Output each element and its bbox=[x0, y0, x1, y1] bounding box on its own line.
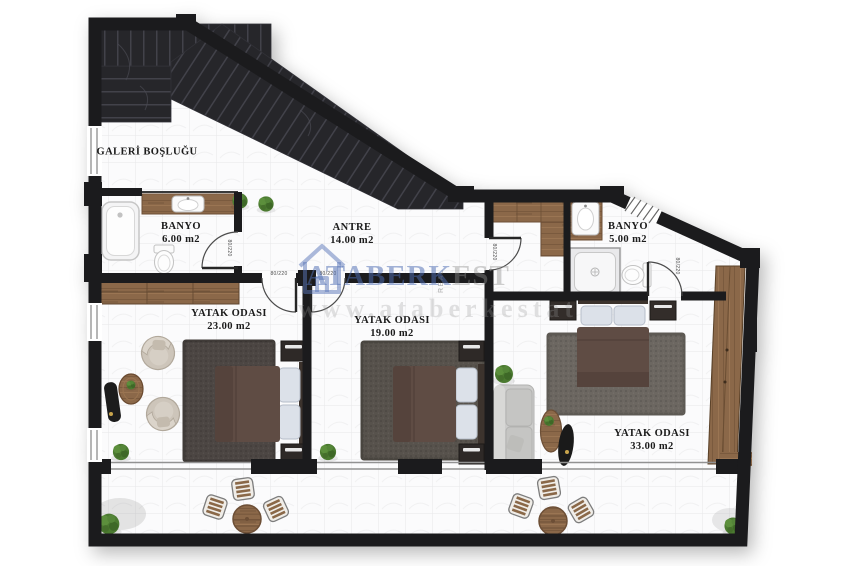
floor-plan-canvas bbox=[0, 0, 850, 566]
sofa bbox=[494, 385, 534, 465]
door-dimension-label: 80/220 bbox=[674, 257, 680, 274]
coffee-table bbox=[541, 410, 562, 452]
room-name: BANYO bbox=[608, 220, 648, 233]
room-label-gallery: GALERİ BOŞLUĞU bbox=[97, 146, 198, 159]
room-name: GALERİ BOŞLUĞU bbox=[97, 146, 198, 159]
nightstand bbox=[459, 341, 484, 361]
floor-plan-page: GALERİ BOŞLUĞU BANYO 6.00 m2 ANTRE 14.00… bbox=[0, 0, 850, 566]
nightstand bbox=[550, 301, 576, 320]
nightstand bbox=[281, 341, 306, 361]
room-label-bedroom-middle: YATAK ODASI 19.00 m2 bbox=[354, 314, 430, 340]
room-label-bathroom-left: BANYO 6.00 m2 bbox=[161, 220, 201, 246]
room-label-bedroom-left: YATAK ODASI 23.00 m2 bbox=[191, 307, 267, 333]
room-area: 23.00 m2 bbox=[191, 320, 267, 333]
door-dimension-label: 80/220 bbox=[270, 271, 287, 277]
door-dimension-label: 80/220 bbox=[319, 271, 336, 277]
door-dimension-label: 80/220 bbox=[491, 243, 497, 260]
room-name: ANTRE bbox=[330, 221, 373, 234]
chair bbox=[231, 477, 255, 501]
headboard bbox=[478, 364, 485, 444]
room-area: 6.00 m2 bbox=[161, 233, 201, 246]
room-area: 33.00 m2 bbox=[614, 440, 690, 453]
door-dimension-label: 80/220 bbox=[226, 239, 232, 256]
bistro-table bbox=[539, 507, 567, 535]
bistro-table bbox=[233, 505, 261, 533]
room-name: YATAK ODASI bbox=[614, 427, 690, 440]
nightstand bbox=[459, 444, 484, 464]
wardrobe bbox=[101, 281, 239, 304]
room-area: 14.00 m2 bbox=[330, 234, 373, 247]
chair bbox=[537, 476, 561, 500]
room-area: 19.00 m2 bbox=[354, 327, 430, 340]
nightstand bbox=[650, 301, 676, 320]
room-name: YATAK ODASI bbox=[354, 314, 430, 327]
room-label-bedroom-right: YATAK ODASI 33.00 m2 bbox=[614, 427, 690, 453]
coffee-table bbox=[119, 374, 143, 404]
room-name: BANYO bbox=[161, 220, 201, 233]
room-area: 5.00 m2 bbox=[608, 233, 648, 246]
room-label-bathroom-right: BANYO 5.00 m2 bbox=[608, 220, 648, 246]
room-label-entry-hall: ANTRE 14.00 m2 bbox=[330, 221, 373, 247]
room-name: YATAK ODASI bbox=[191, 307, 267, 320]
